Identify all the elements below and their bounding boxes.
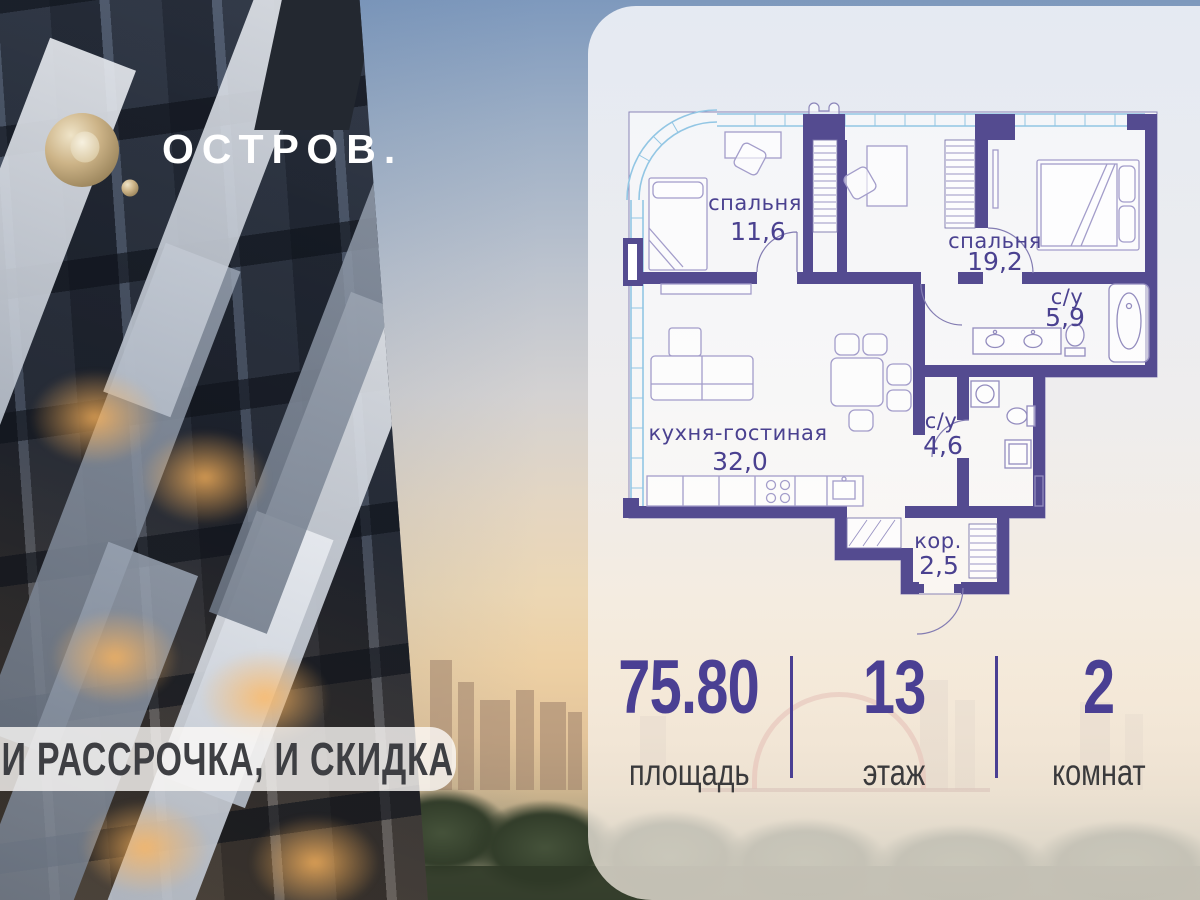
stat-area-value: 75.80 (619, 650, 760, 726)
apartment-stats: 75.80 площадь 13 этаж 2 комнат (588, 650, 1200, 791)
room-area-bathroom2: 4,6 (923, 431, 963, 460)
room-area-bathroom1: 5,9 (1045, 303, 1085, 332)
logo-donut-icon (44, 104, 154, 204)
room-area-kitchen-living: 32,0 (712, 447, 768, 476)
room-area-bedroom1: 11,6 (730, 217, 786, 246)
room-area-bedroom2: 19,2 (967, 247, 1023, 276)
stat-area: 75.80 площадь (588, 650, 790, 791)
room-label-bedroom1: спальня (708, 191, 802, 215)
stat-floor: 13 этаж (793, 650, 995, 791)
promo-banner: И РАССРОЧКА, И СКИДКА (0, 727, 456, 791)
promo-banner-text: И РАССРОЧКА, И СКИДКА (2, 732, 454, 786)
real-estate-ad[interactable]: ОСТРОВ. (0, 0, 1200, 900)
logo-wordmark: ОСТРОВ. (162, 126, 403, 173)
ostrov-logo: ОСТРОВ. (44, 104, 464, 204)
stat-floor-value: 13 (863, 650, 926, 726)
stat-rooms-value: 2 (1083, 650, 1114, 726)
vent-ornament (809, 103, 839, 114)
stat-floor-label: этаж (863, 754, 925, 791)
room-label-bathroom2: с/у (925, 409, 958, 433)
stat-area-label: площадь (629, 754, 750, 791)
room-area-corridor: 2,5 (919, 551, 959, 580)
floor-plan: спальня 11,6 спальня 19,2 с/у 5,9 кухня-… (605, 88, 1165, 640)
room-label-kitchen-living: кухня-гостиная (648, 421, 827, 445)
room-label-corridor: кор. (914, 529, 962, 553)
stat-rooms-label: комнат (1052, 754, 1145, 791)
stat-rooms: 2 комнат (998, 650, 1200, 791)
balcony-door (628, 244, 637, 280)
